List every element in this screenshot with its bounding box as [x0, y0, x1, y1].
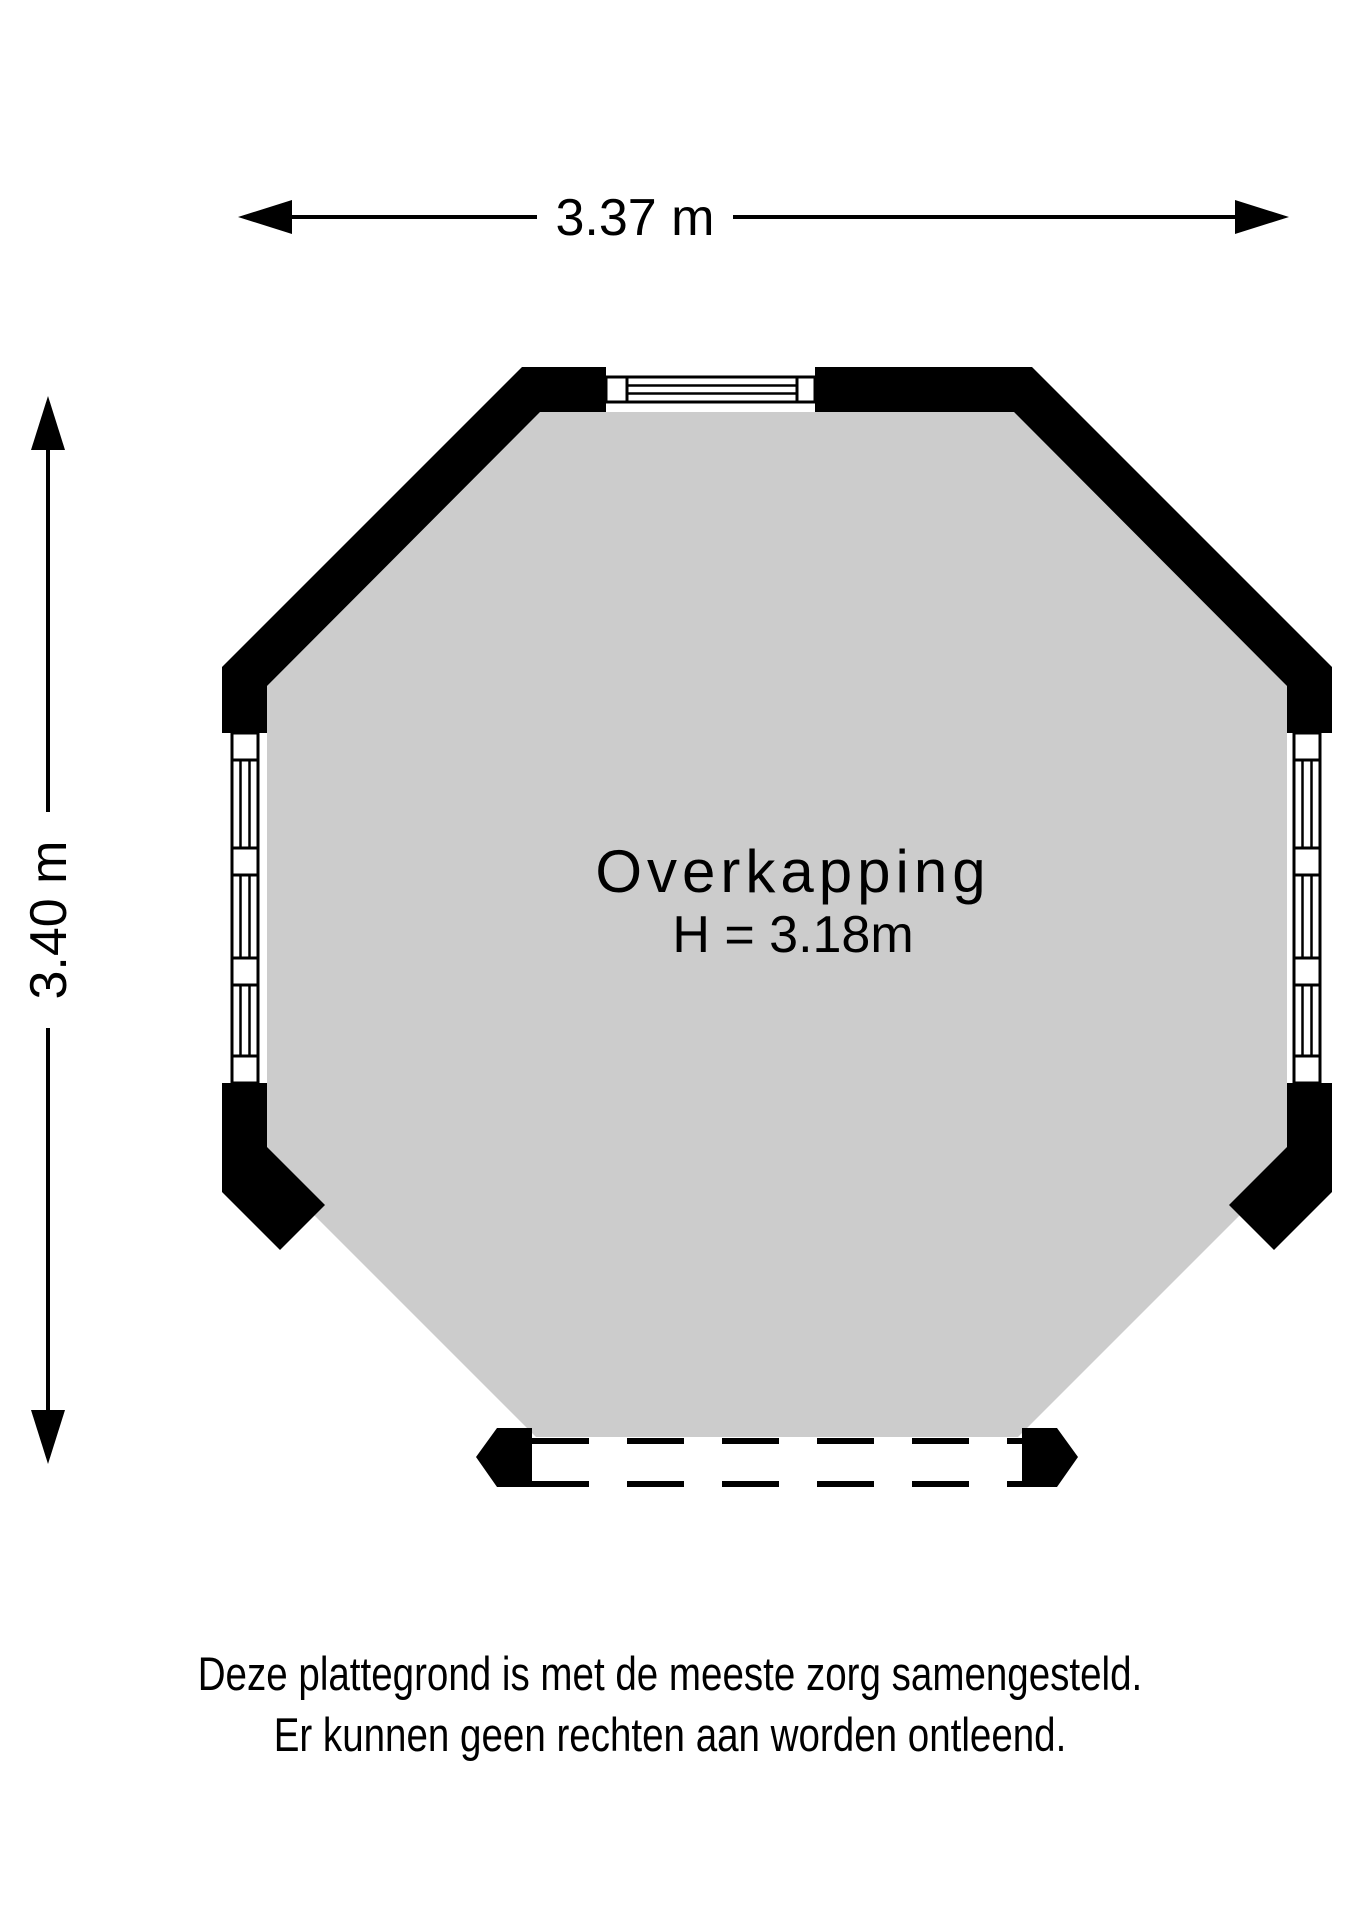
arrowhead-up-icon [31, 396, 65, 450]
disclaimer-line-2: Er kunnen geen rechten aan worden ontlee… [274, 1709, 1067, 1761]
wall-post-opening-right [1022, 1428, 1078, 1487]
floor-plan-drawing: 3.37 m 3.40 m Overkapping H = 3.18m Deze… [0, 0, 1358, 1920]
room-name-label: Overkapping [595, 838, 990, 905]
window-right [1294, 733, 1320, 1083]
window-left-frame [232, 733, 258, 1083]
arrowhead-right-icon [1235, 200, 1289, 234]
room-height-label: H = 3.18m [672, 906, 913, 964]
disclaimer-line-1: Deze plattegrond is met de meeste zorg s… [198, 1648, 1143, 1700]
dimension-width: 3.37 m [238, 188, 1289, 247]
floor-plan-page: 3.37 m 3.40 m Overkapping H = 3.18m Deze… [0, 0, 1358, 1920]
dimension-width-label: 3.37 m [556, 189, 715, 247]
window-left [232, 733, 258, 1083]
arrowhead-down-icon [31, 1410, 65, 1464]
dimension-height-label: 3.40 m [20, 841, 78, 1000]
arrowhead-left-icon [238, 200, 292, 234]
dimension-height: 3.40 m [19, 396, 78, 1464]
window-right-frame [1294, 733, 1320, 1083]
window-top-frame [606, 377, 815, 402]
window-top [606, 377, 815, 402]
wall-post-opening-left [476, 1428, 532, 1487]
